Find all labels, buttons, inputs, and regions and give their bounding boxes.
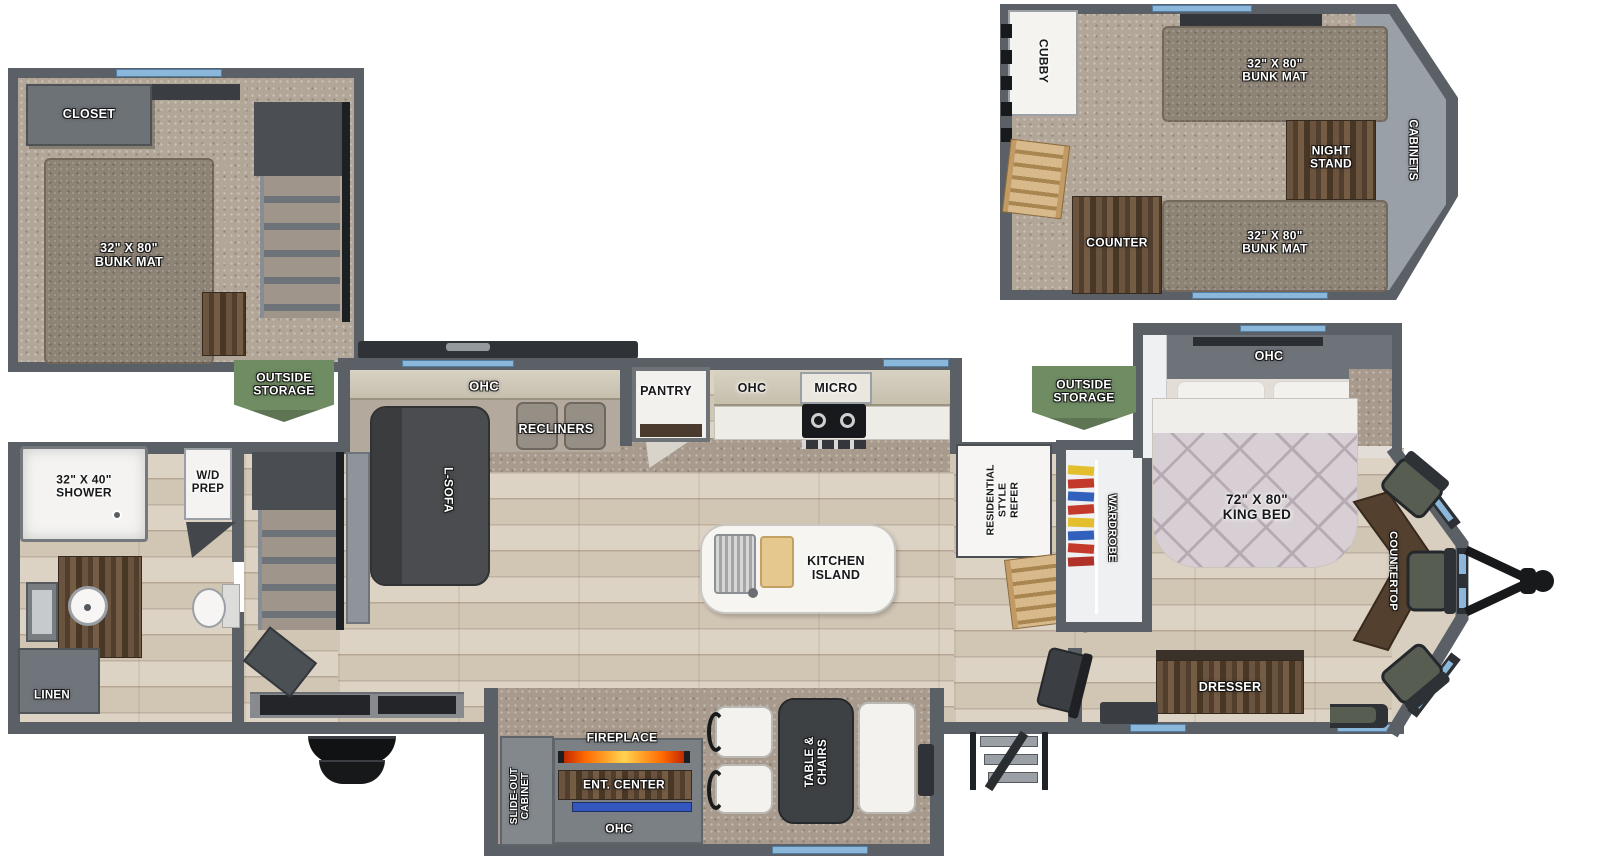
wall-segment	[354, 68, 364, 372]
label-linen: LINEN	[34, 690, 70, 703]
hanging-clothes	[1068, 491, 1094, 501]
entry-steps-frame	[966, 730, 1054, 794]
hanging-clothes	[1068, 465, 1095, 476]
loft-railing-tick	[1001, 102, 1012, 116]
hanging-clothes	[1068, 531, 1094, 541]
label-shower: 32" X 40" SHOWER	[56, 474, 112, 501]
rear-loft	[8, 68, 364, 372]
cooktop-drawer	[802, 440, 866, 449]
label-wd-prep: W/D PREP	[192, 470, 225, 496]
wall-segment	[8, 68, 18, 372]
floorplan: CLOSET 32" X 80" BUNK MAT CUBBY 32" X 80…	[0, 0, 1600, 856]
label-refer: RESIDENTIAL STYLE REFER	[985, 464, 1020, 535]
entry-steps	[319, 760, 385, 784]
hanging-clothes	[1068, 556, 1094, 566]
wall-segment	[8, 722, 484, 734]
stair-landing	[252, 452, 342, 510]
open-door	[346, 452, 370, 624]
wall-segment	[484, 688, 498, 856]
king-bed	[1152, 398, 1358, 568]
label-ohc: OHC	[605, 822, 633, 835]
label-ohc: OHC	[469, 380, 499, 395]
label-bunk-mat: 32" X 80" BUNK MAT	[95, 241, 163, 269]
window-strip	[1240, 325, 1326, 332]
label-bunk-mat: 32" X 80" BUNK MAT	[1242, 230, 1308, 257]
tv-strip	[572, 802, 692, 812]
faucet	[748, 588, 758, 598]
step-tread	[980, 736, 1038, 747]
label-table-chairs: TABLE & CHAIRS	[804, 736, 830, 787]
chair-arm	[707, 770, 725, 810]
mirror-glass	[32, 590, 52, 634]
wood-step	[202, 292, 246, 356]
label-dresser: DRESSER	[1199, 680, 1262, 694]
loft-railing-tick	[1001, 76, 1012, 90]
label-l-sofa: L-SOFA	[441, 467, 454, 513]
desk-panel	[260, 695, 370, 715]
sofa-back	[372, 408, 402, 584]
stair-railing	[342, 102, 350, 322]
overhead-shelf	[152, 84, 240, 100]
window-strip	[1130, 724, 1186, 732]
label-pantry: PANTRY	[640, 384, 692, 398]
pantry-shelf	[640, 424, 702, 437]
slide-topper-handle	[446, 343, 490, 351]
wall-segment	[1446, 90, 1458, 214]
label-countertop: COUNTERTOP	[1387, 531, 1399, 611]
shower-drain	[112, 510, 122, 520]
staircase	[258, 510, 336, 630]
cooktop	[802, 404, 866, 438]
window-strip	[402, 360, 514, 367]
wall-segment	[232, 442, 244, 562]
wall-segment	[950, 358, 962, 454]
label-fireplace: FIREPLACE	[587, 731, 658, 744]
linen-cabinet	[18, 648, 100, 714]
wall-segment	[232, 612, 244, 734]
bed-sheet	[1153, 399, 1358, 437]
overhead-shelf	[1193, 337, 1323, 346]
window-strip	[1152, 5, 1252, 12]
label-bunk-mat: 32" X 80" BUNK MAT	[1242, 58, 1308, 85]
label-cubby: CUBBY	[1036, 39, 1049, 83]
label-counter: COUNTER	[1086, 236, 1147, 249]
burner	[811, 413, 826, 428]
wardrobe	[1056, 440, 1152, 632]
label-kitchen-island: KITCHEN ISLAND	[807, 554, 865, 582]
window-strip	[772, 846, 868, 854]
loft-railing-tick	[1001, 24, 1012, 38]
hanging-clothes	[1068, 478, 1094, 488]
wall-segment	[338, 358, 350, 452]
chair-arm	[707, 712, 725, 752]
label-wardrobe: WARDROBE	[1106, 494, 1118, 562]
stair-landing	[254, 102, 346, 176]
label-slide-out-cabinet: SLIDE-OUT CABINET	[509, 768, 531, 825]
bench	[1100, 702, 1158, 724]
wall-segment	[620, 358, 632, 446]
stair-railing	[336, 452, 344, 630]
window-strip	[116, 69, 222, 77]
hanging-clothes	[1068, 504, 1095, 515]
closet-rod	[1095, 460, 1098, 614]
label-micro: MICRO	[814, 381, 857, 395]
cutting-board	[760, 536, 794, 588]
l-sofa	[370, 406, 490, 586]
step-rail	[970, 732, 976, 790]
step-rail	[1042, 732, 1048, 790]
island-sink	[714, 534, 756, 594]
front-nose-graphic	[1330, 425, 1600, 765]
slide-topper	[358, 341, 638, 359]
window-strip	[1192, 292, 1328, 299]
label-ohc: OHC	[1255, 349, 1284, 363]
dinette-bench	[858, 702, 916, 814]
label-ent-center: ENT. CENTER	[583, 778, 665, 791]
label-cabinets: CABINETS	[1406, 119, 1419, 180]
label-recliners: RECLINERS	[519, 422, 594, 436]
label-outside-storage: OUTSIDE STORAGE	[1053, 379, 1114, 406]
toilet-bowl	[192, 588, 226, 628]
staircase	[260, 176, 340, 318]
label-night-stand: NIGHT STAND	[1310, 145, 1352, 172]
burner	[840, 413, 855, 428]
front-loft	[1000, 4, 1460, 300]
bench-leg	[918, 744, 934, 796]
hanging-clothes	[1068, 543, 1095, 554]
window-strip	[883, 359, 949, 367]
loft-railing-tick	[1001, 50, 1012, 64]
desk-panel	[378, 696, 456, 714]
sink-drain	[84, 604, 91, 611]
label-king-bed: 72" X 80" KING BED	[1223, 492, 1291, 522]
hanging-clothes	[1068, 518, 1094, 528]
fireplace-strip	[558, 751, 690, 763]
label-outside-storage: OUTSIDE STORAGE	[253, 372, 314, 399]
label-ohc: OHC	[738, 381, 767, 395]
loft-ladder	[1002, 139, 1071, 220]
label-closet: CLOSET	[63, 107, 116, 121]
